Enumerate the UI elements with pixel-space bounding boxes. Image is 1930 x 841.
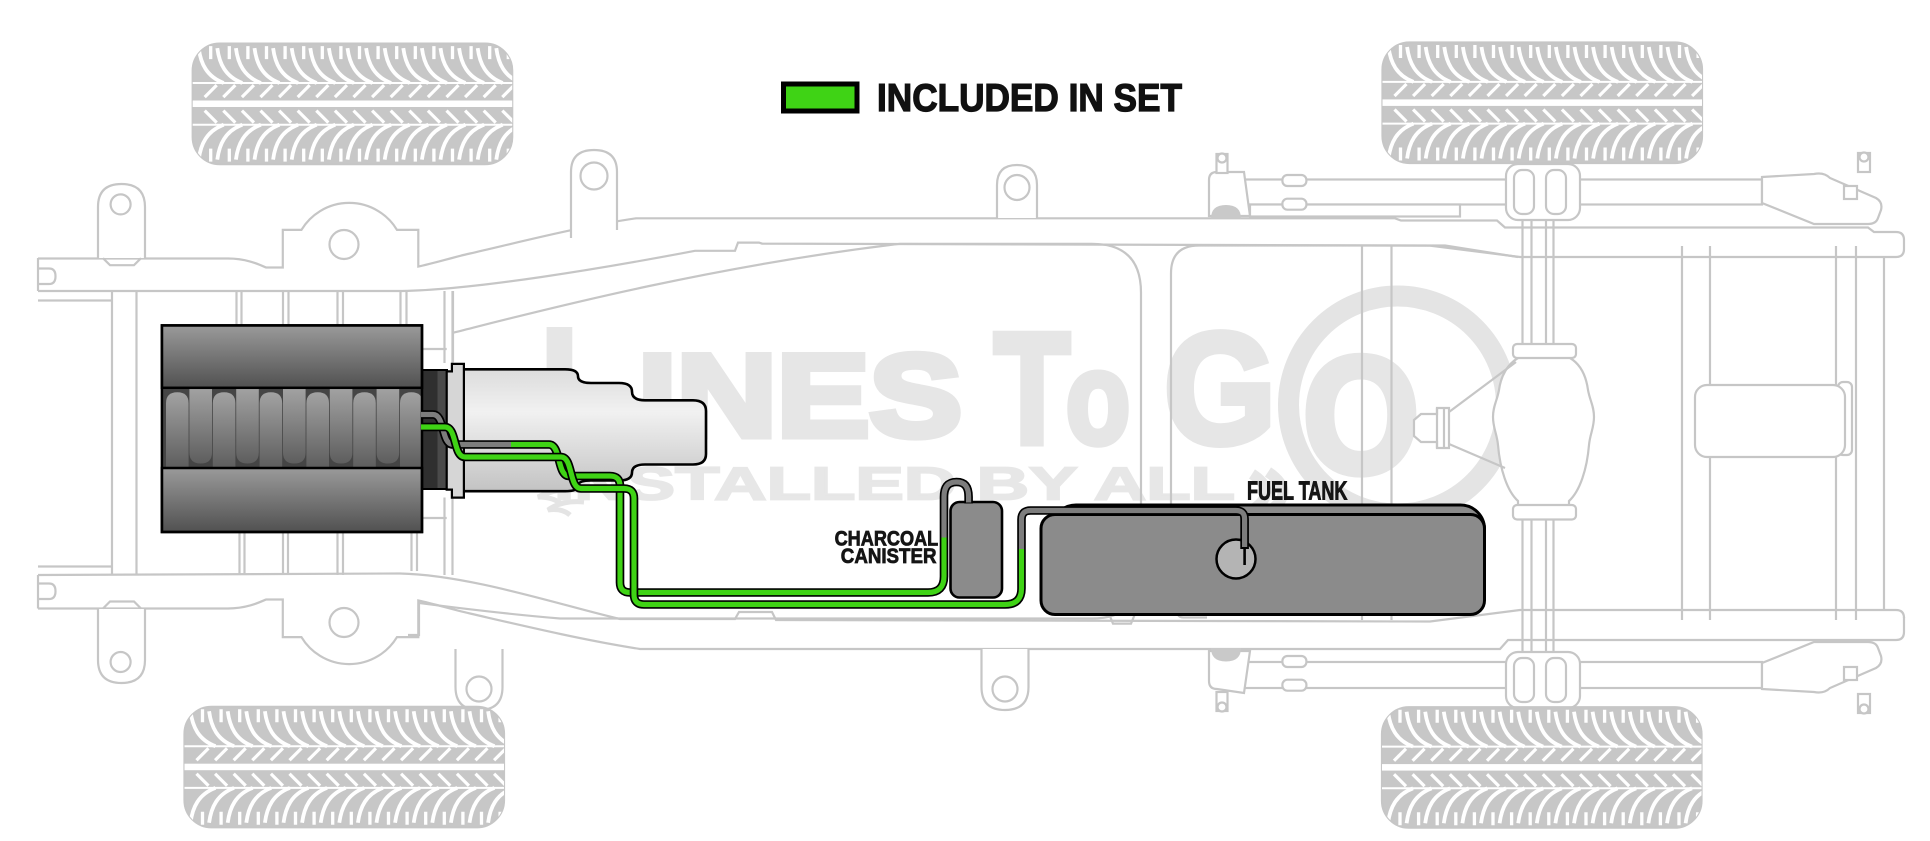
svg-text:CANISTER: CANISTER [841,544,937,568]
svg-text:T: T [994,301,1070,477]
svg-text:FUEL TANK: FUEL TANK [1247,476,1348,506]
svg-text:o: o [1066,325,1130,471]
svg-text:INCLUDED IN SET: INCLUDED IN SET [877,77,1182,120]
svg-text:G: G [1164,301,1276,477]
